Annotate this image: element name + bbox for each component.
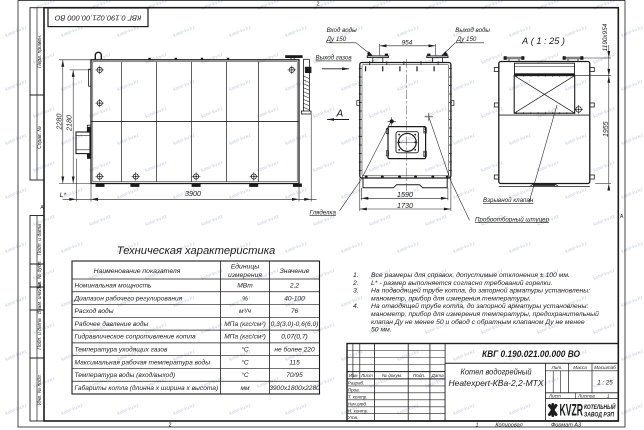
svg-text:Нач.отд.: Нач.отд. (348, 401, 367, 406)
svg-text:мм: мм (240, 385, 250, 392)
svg-text:клапан Ду не менее 50 и обвод: клапан Ду не менее 50 и обвод с обратным… (371, 318, 585, 326)
svg-text:2: 2 (168, 423, 171, 429)
svg-text:Гидравлическое сопротивление к: Гидравлическое сопротивление котла (75, 333, 196, 341)
svg-text:Вход воды: Вход воды (327, 27, 357, 34)
svg-text:Котел водогрейный: Котел водогрейный (461, 367, 532, 377)
svg-text:°С: °С (241, 345, 249, 353)
svg-text:Температура уходящих газов: Температура уходящих газов (75, 345, 168, 353)
svg-text:50 мм.: 50 мм. (371, 327, 392, 334)
svg-text:2,2: 2,2 (289, 283, 299, 290)
svg-text:Разраб.: Разраб. (348, 381, 365, 386)
svg-text:Н. контр.: Н. контр. (348, 408, 369, 413)
svg-text:Все размеры для справок, допус: Все размеры для справок, допустимые откл… (371, 271, 570, 279)
svg-text:На подводящей трубе котла, до: На подводящей трубе котла, до запорной а… (371, 287, 590, 295)
svg-text:70/95: 70/95 (286, 372, 303, 379)
svg-text:1730: 1730 (397, 201, 413, 210)
svg-text:1: 1 (607, 394, 610, 399)
svg-text:Температура воды (вход/выход): Температура воды (вход/выход) (75, 371, 176, 379)
svg-text:Габариты котла (длинна х ширин: Габариты котла (длинна х ширина х высота… (75, 384, 219, 392)
svg-text:ЗАВОД РЭП: ЗАВОД РЭП (584, 411, 614, 418)
svg-text:Значение: Значение (280, 268, 310, 275)
svg-text:КОТЕЛЬНЫЙ: КОТЕЛЬНЫЙ (584, 402, 616, 411)
svg-text:Расход воды: Расход воды (75, 307, 114, 315)
svg-text:Ду 150: Ду 150 (326, 36, 347, 43)
svg-text:Максимальная рабочая температу: Максимальная рабочая температура воды (75, 358, 211, 366)
svg-text:Heatexpert-КВа-2,2-МТХ: Heatexpert-КВа-2,2-МТХ (449, 378, 544, 388)
svg-text:3900х1800х2280: 3900х1800х2280 (269, 385, 320, 392)
svg-text:Лит.: Лит. (551, 365, 563, 370)
svg-text:м³/ч: м³/ч (239, 308, 252, 315)
svg-text:МВт: МВт (237, 283, 253, 290)
svg-text:Листов: Листов (577, 394, 595, 399)
svg-text:МПа (кгс/см²): МПа (кгс/см²) (224, 321, 266, 328)
svg-text:Лист: Лист (360, 373, 373, 378)
svg-text:Пров.: Пров. (348, 387, 360, 392)
svg-text:1190х954: 1190х954 (602, 23, 609, 51)
svg-text:КВГ 0.190.021.00.000 ВО: КВГ 0.190.021.00.000 ВО (54, 13, 141, 22)
svg-text:Перв. примен.: Перв. примен. (37, 35, 43, 68)
svg-text:1: 1 (475, 423, 478, 429)
svg-text:3900: 3900 (185, 189, 201, 198)
svg-text:Инв. № подл.: Инв. № подл. (37, 374, 43, 405)
svg-text:2180: 2180 (65, 115, 74, 132)
svg-text:3.: 3. (353, 288, 359, 295)
svg-text:измерения: измерения (228, 272, 262, 279)
svg-text:Масштаб: Масштаб (594, 365, 616, 370)
svg-text:Взам. инв. №: Взам. инв. № (37, 282, 43, 314)
svg-text:Лист: Лист (548, 394, 561, 399)
svg-text:Пробоотборный штуцер: Пробоотборный штуцер (475, 216, 550, 223)
svg-text:Ду 150: Ду 150 (456, 36, 477, 43)
svg-text:Копировал: Копировал (495, 423, 522, 429)
svg-text:1955: 1955 (603, 121, 610, 137)
svg-text:А: А (336, 108, 344, 119)
svg-text:2280: 2280 (54, 114, 63, 131)
svg-text:Формат А3: Формат А3 (551, 423, 582, 429)
svg-text:0,07(0,7): 0,07(0,7) (281, 334, 307, 341)
svg-text:1.: 1. (353, 272, 359, 279)
svg-text:манометр, прибор для измерения: манометр, прибор для измерения температу… (371, 294, 531, 302)
svg-text:40-100: 40-100 (284, 295, 305, 302)
svg-text:L* - размер выполняется соглас: L* - размер выполняется согласно требова… (371, 279, 553, 287)
svg-text:А ( 1 : 25 ): А ( 1 : 25 ) (521, 36, 565, 46)
svg-text:115: 115 (289, 359, 300, 366)
svg-text:МПа (кгс/см²): МПа (кгс/см²) (224, 334, 266, 341)
svg-text:№ докум.: № докум. (382, 373, 402, 378)
svg-text:1 : 25: 1 : 25 (597, 380, 613, 387)
svg-text:Гляделка: Гляделка (310, 209, 337, 216)
svg-text:Масса: Масса (573, 365, 587, 370)
svg-text:Выход воды: Выход воды (455, 27, 490, 34)
svg-text:Наименование показателя: Наименование показателя (94, 268, 181, 275)
svg-text:°С: °С (241, 371, 249, 379)
svg-text:Единицы: Единицы (231, 263, 259, 271)
svg-text:Дата: Дата (431, 373, 445, 378)
svg-text:Подп. и дата: Подп. и дата (37, 318, 43, 350)
svg-text:Справ. №: Справ. № (37, 126, 43, 149)
svg-text:манометр, прибор для измерения: манометр, прибор для измерения температу… (371, 310, 599, 318)
svg-text:76: 76 (291, 308, 299, 315)
svg-text:Т. контр.: Т. контр. (348, 394, 368, 399)
svg-text:1590: 1590 (397, 190, 413, 199)
svg-text:не более 220: не более 220 (274, 345, 315, 353)
svg-text:Диапазон рабочего регулировани: Диапазон рабочего регулирования (74, 294, 183, 302)
svg-text:4.: 4. (353, 303, 359, 310)
svg-text:Взрывной клапан: Взрывной клапан (483, 197, 534, 204)
svg-text:%: % (242, 295, 248, 302)
svg-text:КВГ 0.190.021.00.000 ВО: КВГ 0.190.021.00.000 ВО (482, 349, 580, 359)
svg-text:Рабочее давление воды: Рабочее давление воды (75, 320, 149, 328)
svg-text:Номинальная мощность: Номинальная мощность (75, 283, 153, 290)
svg-text:KVZR: KVZR (560, 402, 584, 420)
svg-text:Изм: Изм (349, 373, 358, 378)
svg-text:954: 954 (402, 39, 413, 46)
svg-text:На отводящей трубе котла, до з: На отводящей трубе котла, до запорной ар… (371, 302, 588, 310)
svg-text:°С: °С (241, 358, 249, 366)
svg-text:2.: 2. (352, 280, 359, 287)
svg-text:Выход газов: Выход газов (316, 55, 353, 62)
svg-text:L*: L* (60, 192, 67, 199)
svg-text:Утв.: Утв. (348, 415, 358, 420)
svg-text:Подп. и дата: Подп. и дата (37, 224, 43, 256)
svg-text:2: 2 (316, 2, 319, 8)
svg-text:Техническая характеристика: Техническая характеристика (117, 245, 275, 257)
svg-text:Подп.: Подп. (413, 373, 425, 378)
svg-text:0,3(3,0)-0,6(6,0): 0,3(3,0)-0,6(6,0) (271, 321, 319, 328)
